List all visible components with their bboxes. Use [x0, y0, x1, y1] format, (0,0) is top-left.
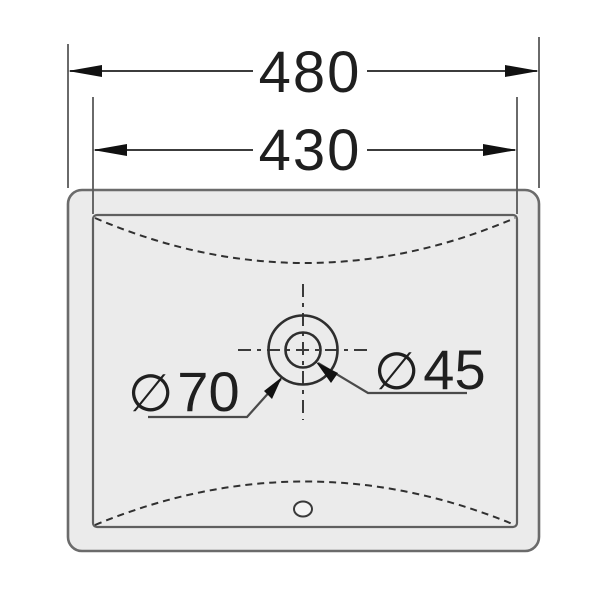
sink-dimension-drawing: 480 430 ∅70 ∅45 [0, 0, 600, 600]
overflow-hole [294, 502, 312, 517]
arrowhead-430-right [483, 144, 517, 156]
dim-480-value: 480 [259, 40, 362, 105]
arrowhead-480-right [505, 65, 539, 77]
diameter-symbol-70: ∅ [128, 365, 173, 423]
diameter-symbol-45: ∅ [374, 343, 419, 401]
technical-drawing-page: 480 430 ∅70 ∅45 [0, 0, 600, 600]
dim-430-value: 430 [259, 118, 362, 183]
arrowhead-480-left [68, 65, 102, 77]
dia-70-value: 70 [177, 360, 239, 423]
arrowhead-430-left [93, 144, 127, 156]
label-dia-70: ∅70 [128, 360, 240, 423]
label-dia-45: ∅45 [374, 338, 486, 401]
dia-45-value: 45 [423, 338, 485, 401]
